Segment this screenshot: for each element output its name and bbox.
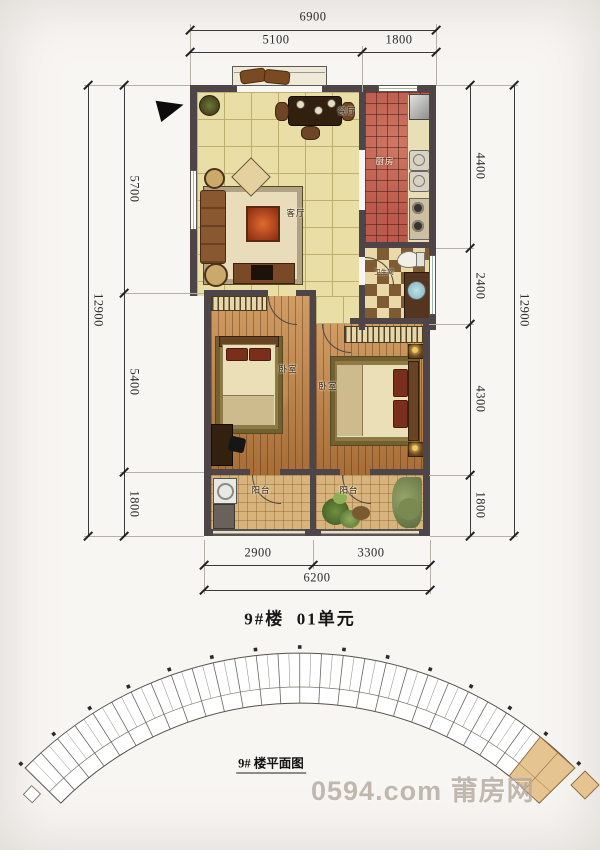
extension-line — [204, 540, 205, 594]
dim-right-seg4: 1800 — [473, 492, 488, 519]
dim-left-seg1: 5700 — [127, 176, 142, 203]
headboard-right — [408, 361, 419, 441]
wall-segment — [204, 290, 268, 296]
washbasin — [407, 281, 426, 300]
building-plan-svg — [0, 638, 600, 850]
wall-segment — [423, 318, 430, 536]
wall-segment — [359, 242, 436, 248]
dim-bottom-total: 6200 — [304, 571, 331, 586]
building-plan-label: 9# 楼平面图 — [236, 753, 306, 774]
bathroom-window — [429, 255, 436, 315]
wall-segment — [204, 469, 250, 475]
dimension-line — [470, 85, 471, 536]
wall-segment — [310, 290, 316, 536]
extension-line — [430, 540, 431, 594]
extension-line — [84, 536, 204, 537]
room-label-bathroom: 卫生间 — [374, 266, 394, 276]
wall-segment — [280, 469, 316, 475]
dim-bottom-seg2: 3300 — [358, 546, 385, 561]
dimension-line — [88, 85, 89, 536]
blanket-fold — [222, 395, 274, 425]
washer-door — [217, 483, 234, 500]
pillow — [393, 400, 408, 428]
wall-segment — [359, 285, 365, 330]
wall-segment — [204, 290, 211, 536]
side-table — [204, 263, 228, 287]
extension-line — [190, 24, 191, 85]
dim-right-seg3: 4300 — [473, 386, 488, 413]
dimension-line — [514, 85, 515, 536]
floorplan-photo: 客厅 餐厅 厨房 卫生间 卧室 卧室 阳台 阳台 6900 5100 1800 … — [0, 0, 600, 850]
dim-right-seg1: 4400 — [473, 153, 488, 180]
pillow — [249, 348, 271, 361]
dimension-line — [190, 30, 436, 31]
extension-line — [436, 85, 518, 86]
dimension-line — [204, 565, 430, 566]
dim-left-seg3: 1800 — [127, 491, 142, 518]
lamp — [412, 347, 418, 353]
rockery — [398, 498, 420, 520]
balcony-railing — [213, 529, 305, 536]
extension-line — [120, 293, 204, 294]
plant — [199, 95, 220, 116]
dim-top-seg1: 5100 — [263, 33, 290, 48]
sofa — [200, 190, 226, 264]
dim-bottom-seg1: 2900 — [245, 546, 272, 561]
dim-left-seg2: 5400 — [127, 369, 142, 396]
wardrobe-right — [344, 326, 423, 343]
extension-line — [430, 536, 518, 537]
dimension-line — [190, 52, 436, 53]
extension-line — [120, 472, 204, 473]
room-label-bedroom-right: 卧室 — [318, 380, 337, 392]
extension-line — [436, 24, 437, 85]
lamp — [412, 445, 418, 451]
dining-chair — [301, 126, 320, 140]
bowl — [314, 106, 323, 115]
wall-segment — [370, 469, 429, 475]
kitchen-window — [378, 85, 418, 92]
soil-patch — [352, 506, 370, 520]
balcony-cabinet — [213, 504, 235, 529]
rug-medallion — [246, 206, 280, 242]
room-label-living: 客厅 — [286, 207, 305, 219]
pillow — [226, 348, 248, 361]
room-label-balcony-right: 阳台 — [339, 484, 358, 496]
room-label-balcony-left: 阳台 — [251, 484, 270, 496]
bay-cushion — [263, 69, 290, 86]
dim-top-total: 6900 — [300, 10, 327, 25]
room-label-dining: 餐厅 — [337, 105, 356, 117]
bowl — [327, 99, 336, 108]
wall-segment — [359, 92, 365, 150]
watermark: 0594.com 莆房网 — [311, 769, 535, 808]
room-label-kitchen: 厨房 — [375, 155, 394, 167]
bowl — [296, 100, 305, 109]
desk-chair — [228, 436, 247, 454]
living-window — [190, 170, 197, 230]
burner — [412, 220, 424, 232]
dim-right-seg2: 2400 — [473, 273, 488, 300]
unit-title: 9#楼 01单元 — [244, 605, 356, 630]
sink-bowl — [413, 175, 425, 187]
burner — [412, 202, 424, 214]
wall-segment — [359, 210, 365, 257]
north-arrow-icon — [156, 94, 187, 122]
dining-chair — [275, 102, 289, 121]
dim-top-seg2: 1800 — [386, 33, 413, 48]
toilet-tank — [416, 252, 425, 267]
wall-segment — [316, 469, 340, 475]
tv — [251, 265, 273, 280]
dim-left-total: 12900 — [91, 293, 106, 327]
dim-right-total: 12900 — [517, 293, 532, 327]
dimension-line — [204, 590, 430, 591]
wardrobe-left — [211, 296, 267, 311]
wall-segment — [190, 85, 237, 92]
sink-bowl — [413, 154, 425, 166]
pillow — [393, 369, 408, 397]
room-label-bedroom-left: 卧室 — [278, 363, 297, 375]
blanket-fold — [336, 364, 363, 436]
extension-line — [84, 85, 190, 86]
side-table — [204, 168, 225, 189]
balcony-railing — [321, 529, 419, 536]
